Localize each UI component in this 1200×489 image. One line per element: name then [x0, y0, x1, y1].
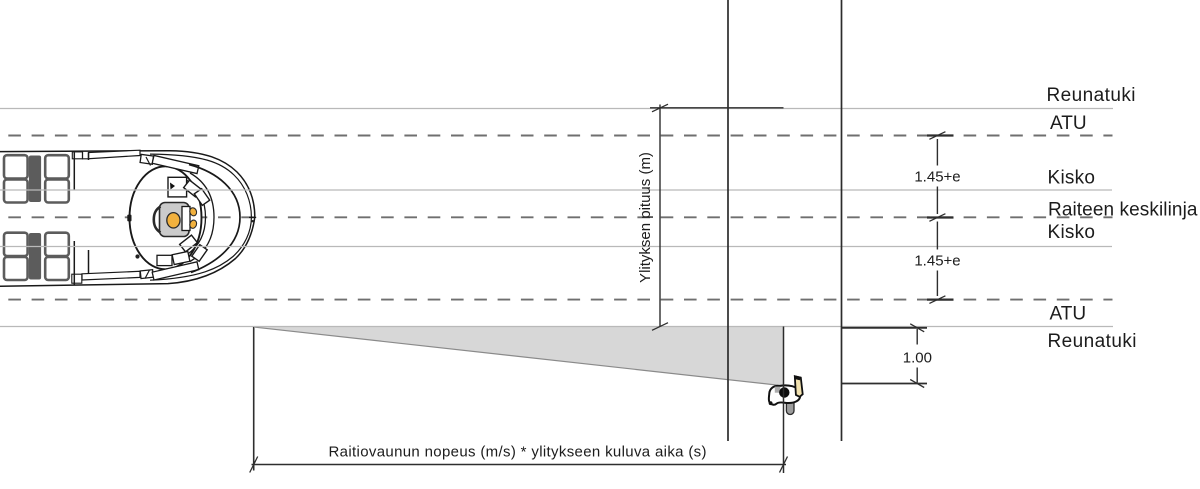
svg-text:Ylityksen pituus (m): Ylityksen pituus (m)	[637, 152, 654, 283]
svg-text:1.45+e: 1.45+e	[914, 168, 960, 185]
svg-text:1.00: 1.00	[903, 349, 932, 366]
svg-text:Raitiovaunun nopeus (m/s) * yl: Raitiovaunun nopeus (m/s) * ylitykseen k…	[329, 444, 707, 461]
svg-text:Kisko: Kisko	[1048, 167, 1096, 188]
svg-text:Reunatuki: Reunatuki	[1048, 331, 1137, 352]
svg-text:Kisko: Kisko	[1048, 222, 1096, 243]
svg-text:1.45+e: 1.45+e	[914, 252, 960, 269]
svg-text:Reunatuki: Reunatuki	[1047, 85, 1136, 106]
svg-text:ATU: ATU	[1050, 113, 1087, 134]
svg-text:ATU: ATU	[1050, 303, 1087, 324]
svg-text:Raiteen keskilinja: Raiteen keskilinja	[1048, 199, 1198, 220]
